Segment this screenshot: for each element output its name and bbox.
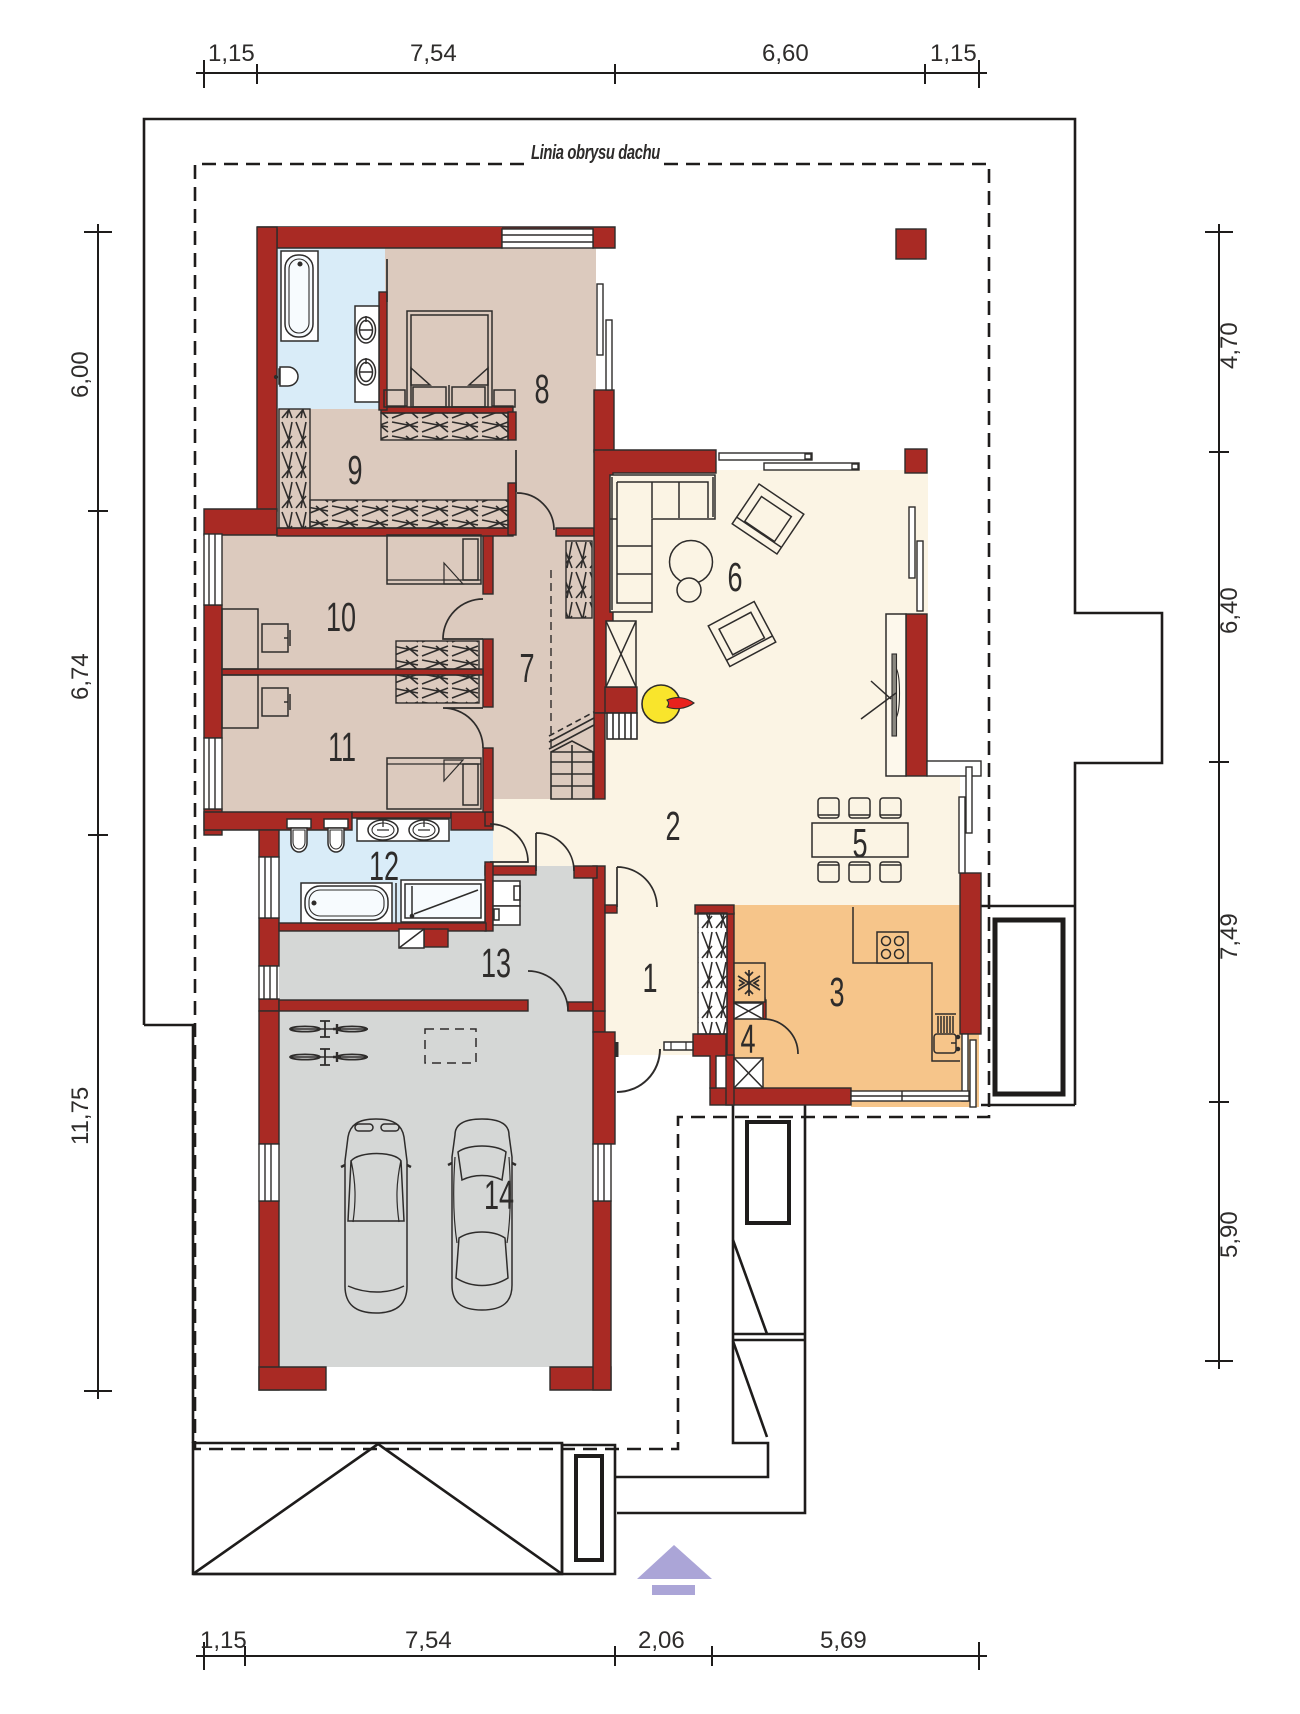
svg-text:5,69: 5,69	[820, 1627, 867, 1654]
svg-text:1,15: 1,15	[200, 1627, 247, 1654]
svg-text:2,06: 2,06	[638, 1627, 685, 1654]
svg-text:1,15: 1,15	[930, 40, 977, 67]
svg-text:14: 14	[484, 1174, 514, 1219]
svg-text:7,54: 7,54	[405, 1627, 452, 1654]
svg-text:3: 3	[829, 971, 844, 1016]
svg-text:4: 4	[740, 1018, 755, 1063]
svg-text:1: 1	[642, 957, 657, 1002]
svg-text:12: 12	[369, 845, 399, 890]
svg-text:7,49: 7,49	[1216, 913, 1243, 960]
svg-text:6,00: 6,00	[67, 351, 94, 398]
svg-text:11: 11	[328, 726, 356, 771]
svg-text:10: 10	[326, 596, 356, 641]
svg-text:5: 5	[852, 822, 867, 867]
svg-text:6: 6	[727, 556, 742, 601]
svg-text:8: 8	[534, 368, 549, 413]
svg-text:4,70: 4,70	[1216, 322, 1243, 369]
svg-text:9: 9	[347, 449, 362, 494]
svg-text:1,15: 1,15	[208, 40, 255, 67]
svg-text:Linia obrysu dachu: Linia obrysu dachu	[531, 141, 661, 164]
svg-text:7: 7	[519, 647, 534, 692]
svg-text:7,54: 7,54	[410, 40, 457, 67]
svg-text:13: 13	[481, 942, 511, 987]
svg-text:5,90: 5,90	[1216, 1211, 1243, 1258]
svg-text:6,60: 6,60	[762, 40, 809, 67]
svg-text:2: 2	[665, 805, 680, 850]
svg-text:11,75: 11,75	[67, 1087, 94, 1145]
svg-text:6,40: 6,40	[1216, 587, 1243, 634]
svg-text:6,74: 6,74	[67, 653, 94, 700]
